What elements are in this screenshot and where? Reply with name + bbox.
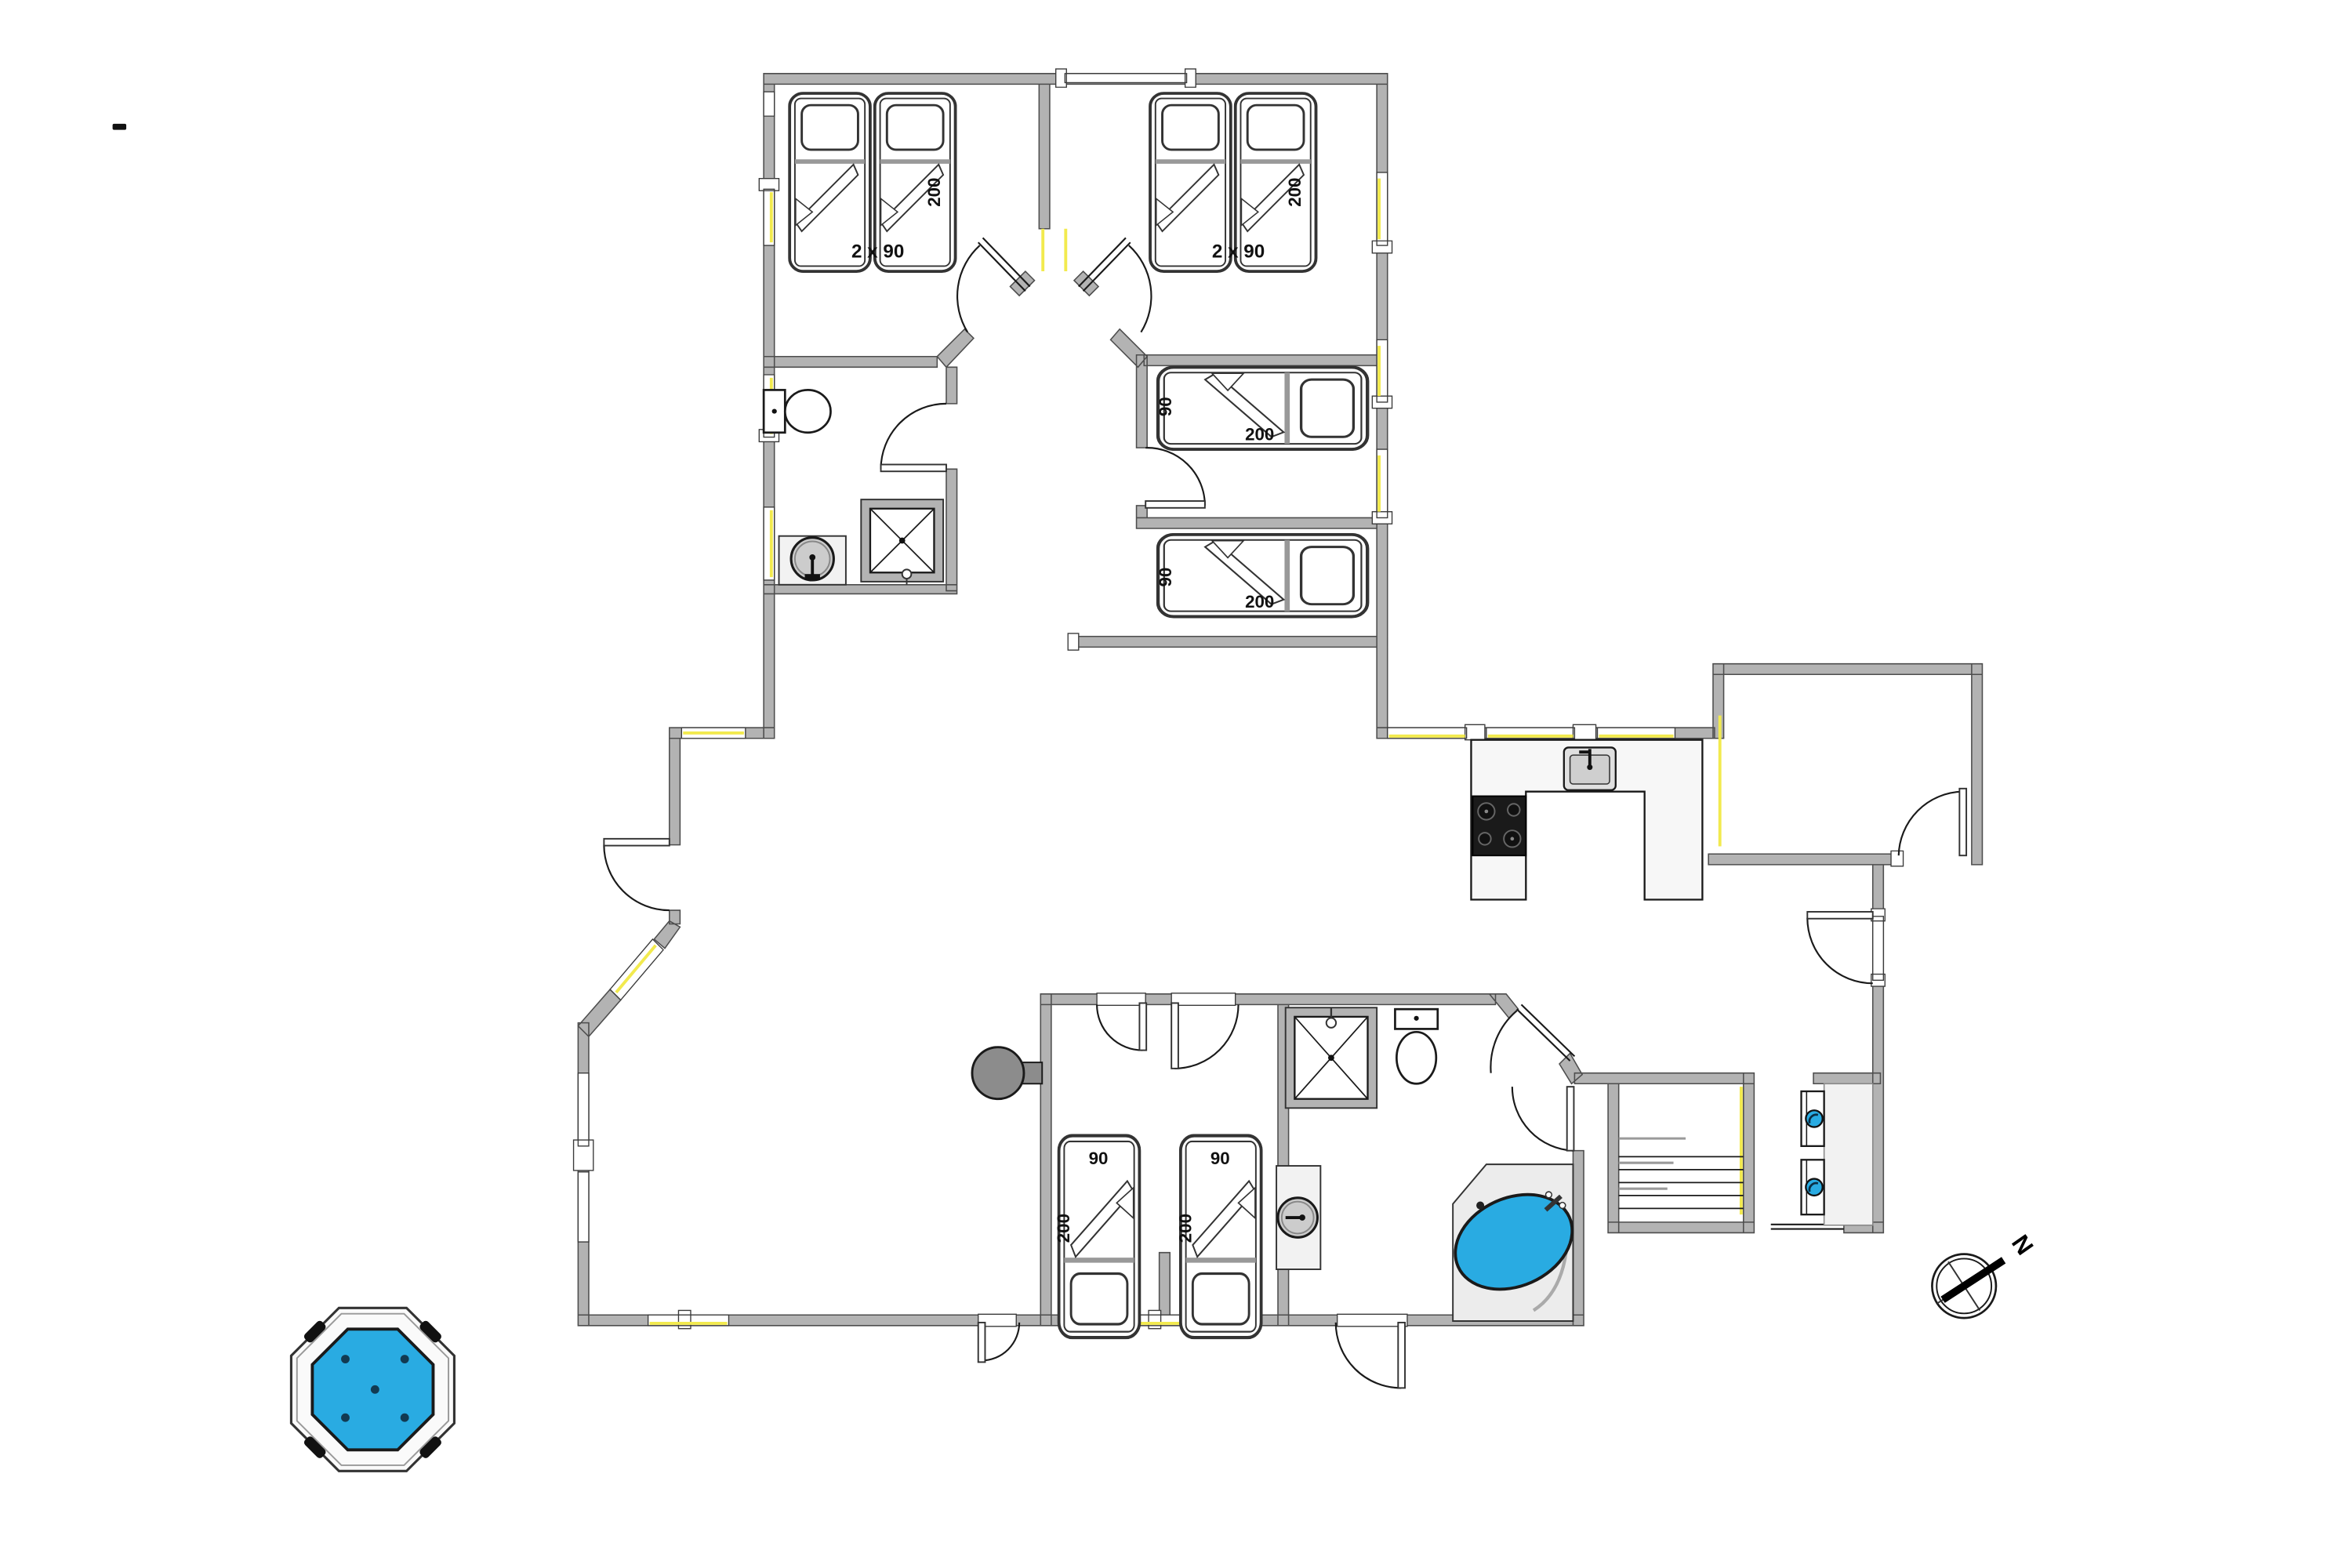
bed-width-label: 90 <box>1089 1149 1109 1168</box>
bed-length-label: 200 <box>924 178 944 207</box>
bed-length-label: 200 <box>1285 178 1305 207</box>
bed-length-label: 200 <box>1245 592 1274 612</box>
toilet-icon <box>764 390 830 432</box>
shower-icon <box>861 499 943 585</box>
bed-width-label: 90 <box>1156 397 1175 416</box>
print-mark <box>113 124 126 130</box>
bed-length-label: 200 <box>1245 424 1274 444</box>
floor-plan-page: N 200 2 x 90 200 2 x 90 90 200 90 200 90… <box>0 0 2352 1568</box>
bed-width-label: 90 <box>1156 568 1175 587</box>
bed-width-label: 90 <box>1210 1149 1230 1168</box>
bed-size-label: 2 x 90 <box>1212 241 1265 263</box>
toilet-icon <box>1395 1009 1437 1083</box>
bed-length-label: 200 <box>1175 1214 1195 1243</box>
kitchen-sink-icon <box>1564 747 1616 789</box>
floor-plan-canvas: N 200 2 x 90 200 2 x 90 90 200 90 200 90… <box>0 0 2352 1568</box>
sink-icon <box>1276 1166 1320 1269</box>
shower-icon <box>1286 1007 1377 1108</box>
hot-tub-icon <box>291 1308 454 1471</box>
sink-icon <box>779 536 846 585</box>
washer-icon <box>1802 1160 1824 1214</box>
cooktop-icon <box>1472 797 1526 856</box>
bed-length-label: 200 <box>1054 1214 1073 1243</box>
bed-size-label: 2 x 90 <box>851 241 904 263</box>
washer-icon <box>1802 1091 1824 1146</box>
utility-floor <box>1824 1083 1873 1225</box>
